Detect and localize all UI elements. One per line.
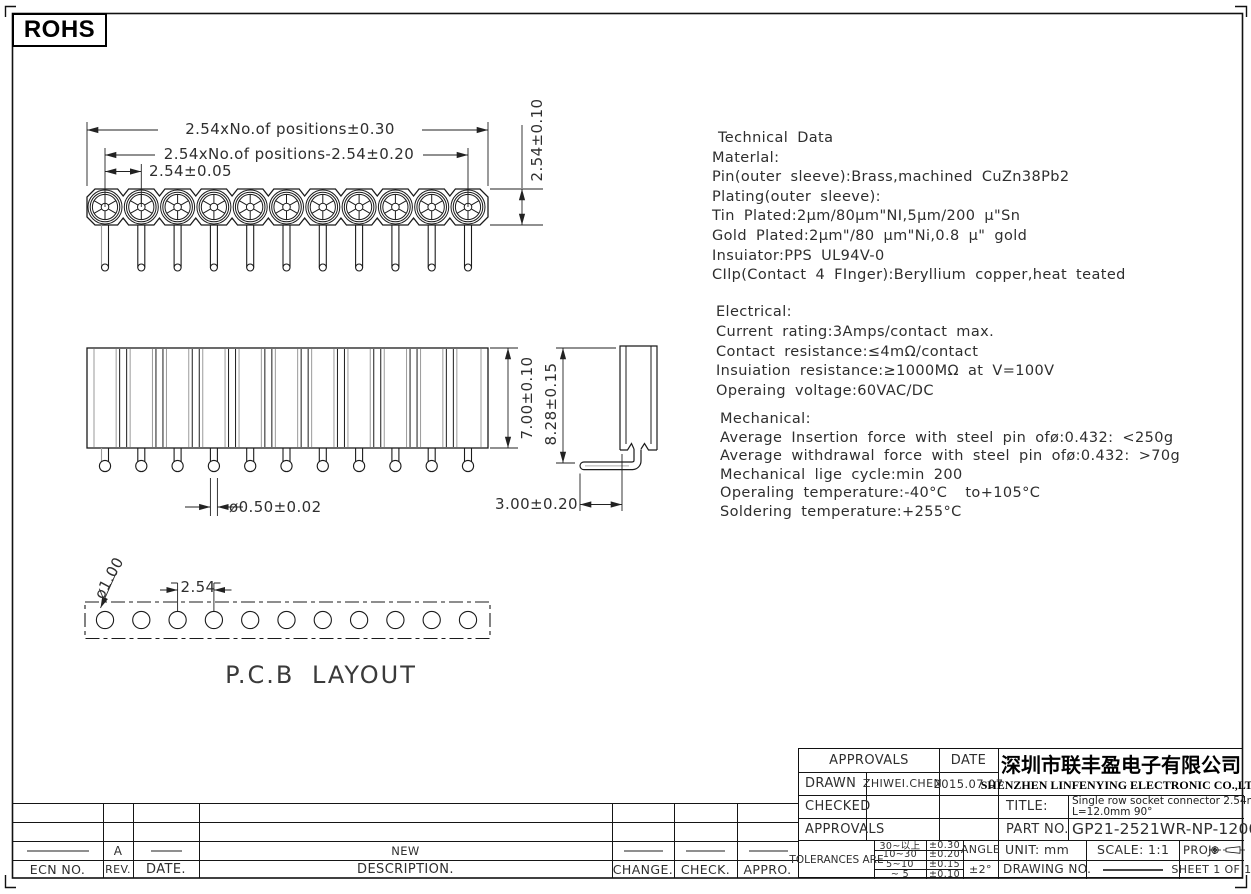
tolerances-label: TOLERANCES ARE: [799, 840, 874, 879]
text-line: Tin Plated:2μm/80μm"NI,5μm/200 μ"Sn: [712, 207, 1126, 227]
col-header-ecn: ECN NO.: [12, 860, 103, 878]
text-line: Insuiator:PPS UL94V-0: [712, 247, 1126, 267]
revision-description: NEW: [199, 841, 612, 860]
drawing-no-label: DRAWING NO.: [1003, 860, 1086, 880]
drawn-label: DRAWN: [805, 772, 866, 795]
drawing-no-placeholder-line: [1103, 869, 1163, 871]
pcb-layout-caption: P.C.B LAYOUT: [225, 661, 417, 689]
angle-value: ±2°: [963, 860, 998, 880]
check-placeholder-line: [686, 850, 725, 852]
technical-data-material-block: Technical Data Materlal: Pin(outer sleev…: [712, 129, 1126, 286]
text-line: Plating(outer sleeve):: [712, 188, 1126, 208]
text-line: Materlal:: [712, 149, 1126, 169]
text-line: Average Insertion force with steel pin o…: [720, 429, 1180, 448]
col-header-check: CHECK.: [674, 860, 737, 878]
dim-center-to-center: 2.54xNo.of positions-2.54±0.20: [155, 145, 423, 163]
col-header-description: DESCRIPTION.: [199, 860, 612, 878]
company-name-en: SHENZHEN LINFENYING ELECTRONIC CO.,LTD: [998, 775, 1244, 795]
date-placeholder-line: [151, 850, 182, 852]
change-placeholder-line: [624, 850, 663, 852]
text-line: Insuiation resistance:≥1000MΩ at V=100V: [716, 362, 1054, 382]
top-view-drawing: [87, 189, 488, 271]
title-value-line1: Single row socket connector 2.54mm: [1072, 796, 1242, 807]
technical-data-mechanical-block: Mechanical: Average Insertion force with…: [720, 410, 1180, 522]
dim-pcb-pitch: 2.54: [179, 578, 217, 596]
title-label: TITLE:: [1006, 795, 1068, 818]
company-name-cn: 深圳市联丰盈电子有限公司: [998, 750, 1244, 776]
dim-total-height: 8.28±0.15: [542, 348, 560, 460]
text-line: CIlp(Contact 4 FInger):Beryllium copper,…: [712, 266, 1126, 286]
col-header-date: DATE.: [133, 860, 199, 878]
dim-overall-length: 2.54xNo.of positions±0.30: [158, 120, 422, 138]
dim-body-depth: 2.54±0.10: [528, 85, 546, 195]
approvals-row-label: APPROVALS: [805, 818, 895, 840]
revision-table: A NEW ECN NO. REV. DATE. DESCRIPTION. CH…: [12, 803, 798, 878]
dim-pin-length: 3.00±0.20: [494, 495, 578, 513]
dim-pin-diameter: ø0.50±0.02: [229, 498, 322, 516]
engineering-drawing-sheet: ROHS Technical Data Materlal: Pin(outer …: [0, 0, 1251, 894]
angle-label: ANGLE: [963, 840, 998, 860]
title-value-line2: L=12.0mm 90°: [1072, 807, 1242, 818]
text-line: Average withdrawal force with steel pin …: [720, 447, 1180, 466]
text-line: Current rating:3Amps/contact max.: [716, 323, 1054, 343]
end-view-drawing: [580, 346, 657, 470]
projection-symbol-icon: [1209, 842, 1245, 858]
rohs-badge: ROHS: [12, 13, 107, 47]
text-line: Operaling temperature:-40°C to+105°C: [720, 484, 1180, 503]
col-header-rev: REV.: [103, 860, 133, 878]
text-line: Soldering temperature:+255°C: [720, 503, 1180, 522]
text-line: Gold Plated:2μm"/80 μm"Ni,0.8 μ" gold: [712, 227, 1126, 247]
unit-value: UNIT: mm: [1005, 840, 1086, 860]
col-header-change: CHANGE.: [612, 860, 674, 878]
approvals-header: APPROVALS: [799, 749, 939, 772]
drawn-by-value: ZHIWEI.CHEN: [866, 772, 939, 795]
pcb-layout-drawing: [85, 602, 490, 639]
text-line: Mechanical:: [720, 410, 1180, 429]
date-header: DATE: [939, 749, 998, 772]
text-line: Technical Data: [718, 129, 1126, 149]
ecn-placeholder-line: [27, 850, 89, 852]
text-line: Mechanical lige cycle:min 200: [720, 466, 1180, 485]
rohs-label: ROHS: [24, 16, 95, 44]
tolerance-value-4: ±0.10: [926, 869, 963, 879]
text-line: Electrical:: [716, 303, 1054, 323]
text-line: Pin(outer sleeve):Brass,machined CuZn38P…: [712, 168, 1126, 188]
part-no-label: PART NO.: [1006, 818, 1068, 840]
text-line: Operaing voltage:60VAC/DC: [716, 382, 1054, 402]
dim-body-height: 7.00±0.10: [518, 342, 536, 454]
tolerance-range-4: ~ 5: [874, 869, 926, 879]
revision-letter: A: [103, 841, 133, 860]
technical-data-electrical-block: Electrical: Current rating:3Amps/contact…: [716, 303, 1054, 402]
appro-placeholder-line: [749, 850, 788, 852]
text-line: Contact resistance:≤4mΩ/contact: [716, 343, 1054, 363]
part-no-value: GP21-2521WR-NP-1200B: [1072, 818, 1244, 840]
scale-value: SCALE: 1:1: [1097, 840, 1179, 860]
dim-pitch: 2.54±0.05: [149, 162, 232, 180]
title-block: APPROVALS DATE DRAWN ZHIWEI.CHEN 2015.07…: [798, 748, 1243, 878]
side-view-drawing: [87, 348, 488, 472]
sheet-value: SHEET 1 OF 1: [1179, 860, 1244, 880]
